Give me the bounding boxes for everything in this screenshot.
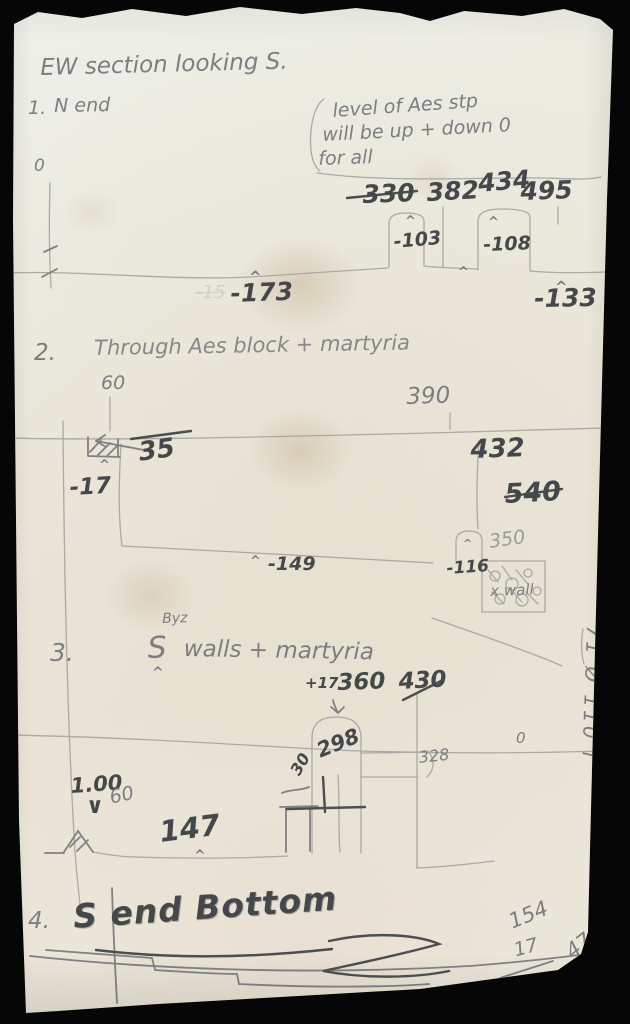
section2-label: Through Aes block + martyria — [94, 332, 410, 359]
elevation-+17: +17 — [305, 676, 338, 691]
elevation-430: 430 — [398, 668, 447, 693]
elevation-60: 60 — [101, 374, 125, 393]
elevation-330: 330 — [362, 180, 415, 207]
section4-number: 4. — [28, 910, 50, 933]
depth--108: -108 — [483, 234, 531, 255]
section2-number: 2. — [34, 342, 56, 365]
elevation-350: 350 — [488, 528, 527, 552]
caret-mark: ^ — [249, 270, 262, 285]
elevation-495: 495 — [520, 177, 573, 204]
paper-sheet: EW section looking S. 1. N end level of … — [0, 0, 630, 1024]
section3-label-s: S — [147, 633, 167, 664]
section3-superscript-byz: Byz — [162, 611, 188, 626]
elevation-360: 360 — [337, 670, 386, 695]
note-line-3: for all — [318, 148, 373, 169]
erased-depth: -15 — [196, 284, 225, 302]
photo-of-field-note: EW section looking S. 1. N end level of … — [0, 0, 630, 1024]
caret-mark: ^ — [488, 216, 499, 229]
section1-number: 1. — [28, 99, 46, 118]
section3-number: 3. — [50, 640, 74, 665]
wall-annotation: x wall — [490, 582, 534, 599]
depth--116: -116 — [446, 558, 490, 578]
elevation-328: 328 — [418, 747, 450, 766]
measure-147: 147 — [158, 811, 222, 847]
down-arrow-mark: ∨ — [86, 796, 104, 818]
caret-mark: ^ — [555, 280, 568, 295]
caret-mark: ^ — [463, 538, 472, 549]
depth--149: -149 — [268, 555, 316, 574]
section1-label: N end — [54, 96, 110, 116]
datum-zero-label: 0 — [34, 158, 45, 175]
groundline-zero-label: 0 — [516, 731, 526, 746]
depth--17: -17 — [69, 475, 112, 500]
depth--103: -103 — [393, 229, 442, 252]
caret-mark: ^ — [405, 215, 416, 228]
rotated-margin-note: 71 Ø 110 f — [579, 625, 604, 761]
caret-mark: ^ — [99, 459, 110, 472]
elevation-382: 382 — [426, 177, 479, 205]
depth--173: -173 — [230, 279, 293, 306]
measure-60: 60 — [108, 784, 136, 808]
section3-label-rest: walls + martyria — [184, 638, 374, 664]
caret-mark: ^ — [194, 849, 206, 863]
elevation-390: 390 — [406, 384, 451, 409]
caret-mark: ^ — [458, 266, 469, 279]
caret-mark: ^ — [250, 555, 261, 568]
pencil-linework — [0, 0, 630, 1024]
elevation-540: 540 — [504, 478, 562, 508]
elevation-432: 432 — [470, 435, 525, 463]
measure-35: 35 — [137, 435, 176, 466]
caret-mark: ^ — [152, 666, 164, 680]
